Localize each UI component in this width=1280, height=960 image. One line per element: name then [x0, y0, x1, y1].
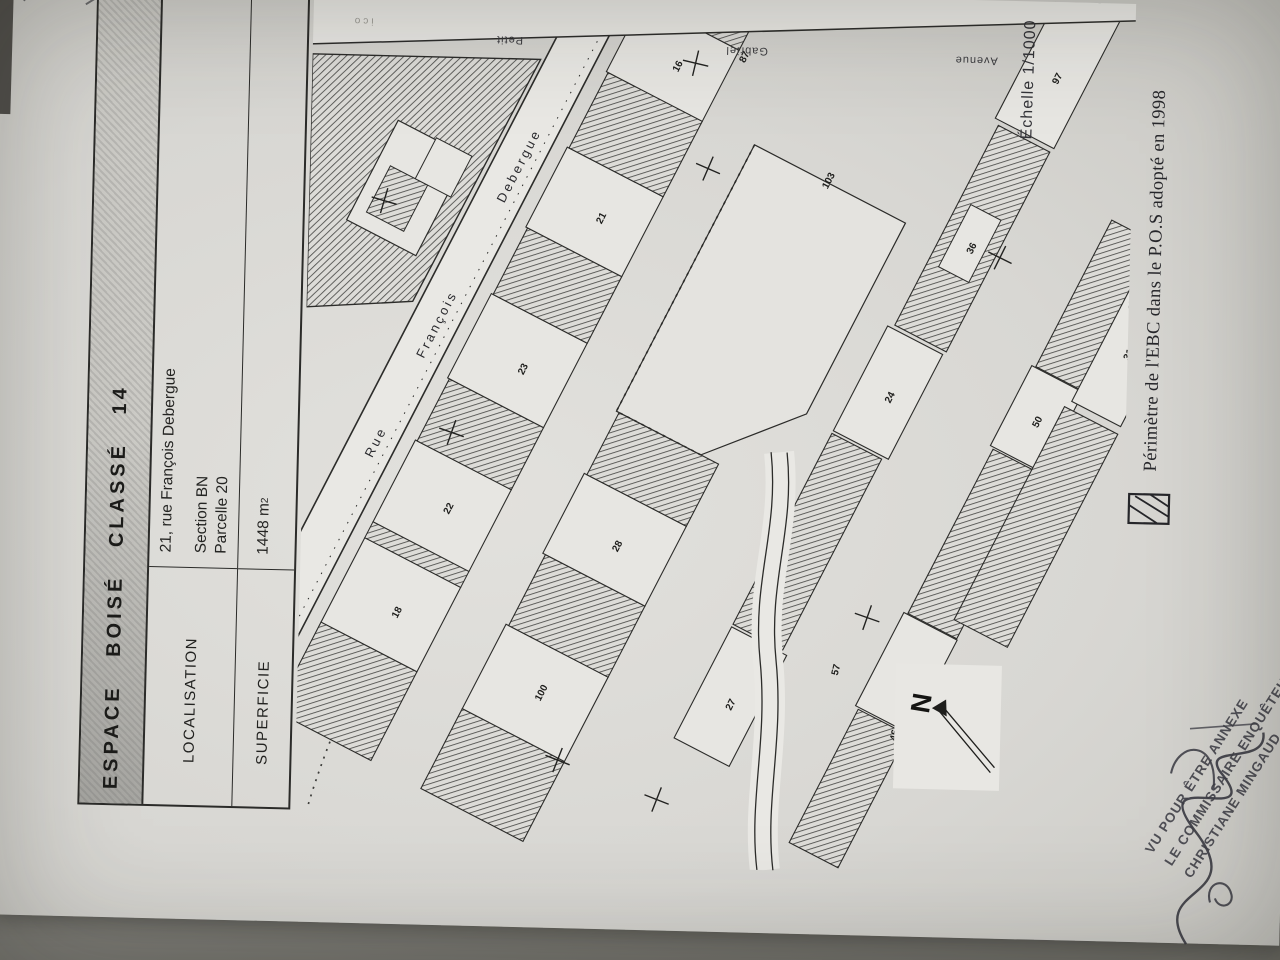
- legend: Périmètre de l'EBC dans le P.O.S adopté …: [1125, 89, 1184, 528]
- address-line: 21, rue François Debergue: [157, 1, 188, 552]
- cadastral-map: Rue François Debergue 18 22 23: [293, 0, 1136, 879]
- localisation-value: 21, rue François Debergue Section BN Par…: [149, 0, 251, 568]
- map-canvas: Rue François Debergue 18 22 23: [293, 0, 1136, 879]
- faint-street-label: ico: [352, 15, 374, 27]
- parcel-number: 57: [830, 663, 843, 677]
- info-table: ESPACE BOISÉ CLASSÉ 14 LOCALISATION 21, …: [77, 0, 310, 810]
- area-number: 1448 m: [254, 503, 273, 555]
- localisation-label: LOCALISATION: [143, 566, 237, 806]
- side-street-petit: Petit: [496, 33, 523, 46]
- north-compass: N: [893, 663, 1002, 791]
- document-paper: ESPACE BOISÉ CLASSÉ 14 LOCALISATION 21, …: [0, 0, 1280, 946]
- side-street-gabriel: Gabriel: [725, 44, 768, 57]
- side-street-avenue: Avenue: [954, 54, 997, 67]
- legend-caption: Périmètre de l'EBC dans le P.O.S adopté …: [1140, 90, 1170, 472]
- superficie-label: SUPERFICIE: [232, 568, 294, 807]
- photo-background: ESPACE BOISÉ CLASSÉ 14 LOCALISATION 21, …: [0, 0, 1280, 960]
- legend-hatch-swatch: [1125, 487, 1174, 528]
- area-exponent: 2: [259, 497, 270, 503]
